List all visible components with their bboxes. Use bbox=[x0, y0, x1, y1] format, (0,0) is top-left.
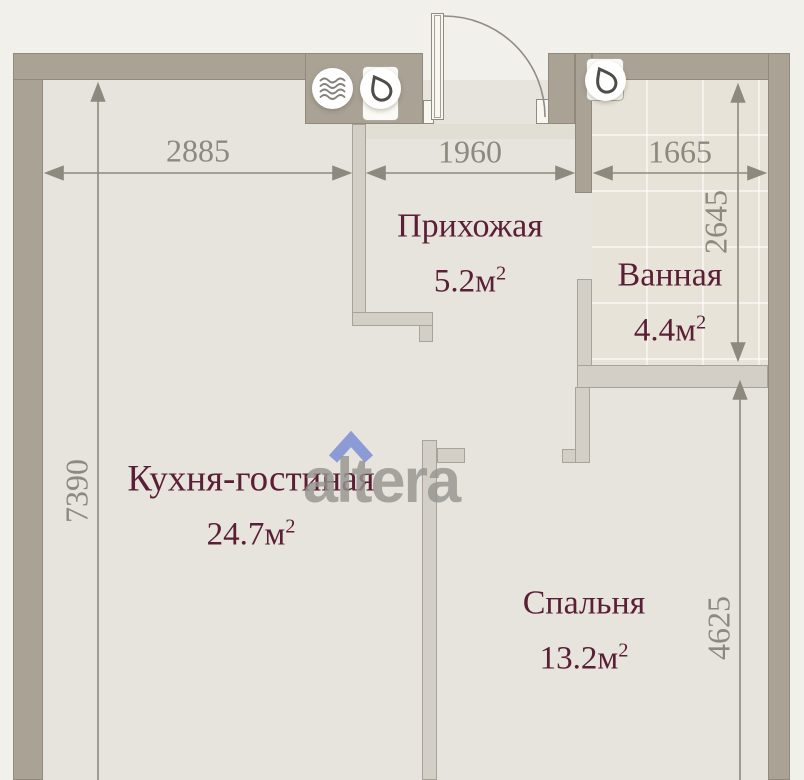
dim-label-7390: 7390 bbox=[59, 459, 96, 523]
logo-wordmark: altera bbox=[303, 451, 459, 511]
room-area-sup: 2 bbox=[696, 312, 706, 334]
water-drop-icon bbox=[585, 60, 626, 101]
door-leaf-panel bbox=[434, 15, 441, 118]
door-jamb-right bbox=[536, 99, 549, 124]
room-area-sup: 2 bbox=[496, 263, 506, 285]
drop-glyph bbox=[585, 60, 626, 101]
partition-bedroom-top-flange bbox=[562, 449, 576, 463]
partition-hallway-kitchen-vertical bbox=[352, 124, 366, 314]
wall-left bbox=[13, 53, 43, 780]
room-area-value: 24.7м bbox=[207, 517, 286, 553]
waves-glyph bbox=[312, 68, 353, 109]
water-drop-icon bbox=[360, 68, 401, 109]
wall-top-left bbox=[13, 53, 347, 80]
partition-bathroom-bottom bbox=[577, 365, 768, 388]
room-label-hallway: Прихожая 5.2м2 bbox=[397, 207, 543, 302]
dim-label-1960: 1960 bbox=[438, 134, 502, 171]
partition-bedroom-top-vertical bbox=[575, 387, 590, 463]
room-area-value: 13.2м bbox=[540, 641, 619, 677]
entrance-door-leaf bbox=[431, 13, 444, 120]
room-area-sup: 2 bbox=[618, 640, 628, 662]
room-name: Прихожая bbox=[397, 207, 543, 247]
room-name: Спальня bbox=[523, 584, 646, 624]
partition-bathroom-left bbox=[577, 279, 592, 367]
room-area: 4.4м2 bbox=[618, 303, 723, 351]
room-label-bedroom: Спальня 13.2м2 bbox=[523, 584, 646, 679]
ventilation-waves-icon bbox=[312, 68, 353, 109]
room-name: Ванная bbox=[618, 256, 723, 296]
room-area-sup: 2 bbox=[285, 516, 295, 538]
room-area: 13.2м2 bbox=[523, 631, 646, 679]
wall-right bbox=[768, 53, 790, 780]
wall-entry-right-block bbox=[548, 53, 575, 124]
room-area-value: 4.4м bbox=[634, 313, 696, 349]
room-label-bathroom: Ванная 4.4м2 bbox=[618, 256, 723, 351]
dim-label-2645: 2645 bbox=[698, 190, 735, 254]
drop-glyph bbox=[360, 68, 401, 109]
partition-hallway-kitchen-horizontal bbox=[352, 312, 433, 326]
dim-label-2885: 2885 bbox=[166, 133, 230, 170]
partition-hallway-stub bbox=[419, 325, 433, 342]
room-area-value: 5.2м bbox=[434, 264, 496, 300]
room-area: 5.2м2 bbox=[397, 254, 543, 302]
dim-label-1665: 1665 bbox=[648, 134, 712, 171]
dim-label-4625: 4625 bbox=[701, 596, 738, 660]
floor-plan: 2885 1960 1665 7390 2645 4625 Прихожая 5… bbox=[0, 0, 804, 780]
